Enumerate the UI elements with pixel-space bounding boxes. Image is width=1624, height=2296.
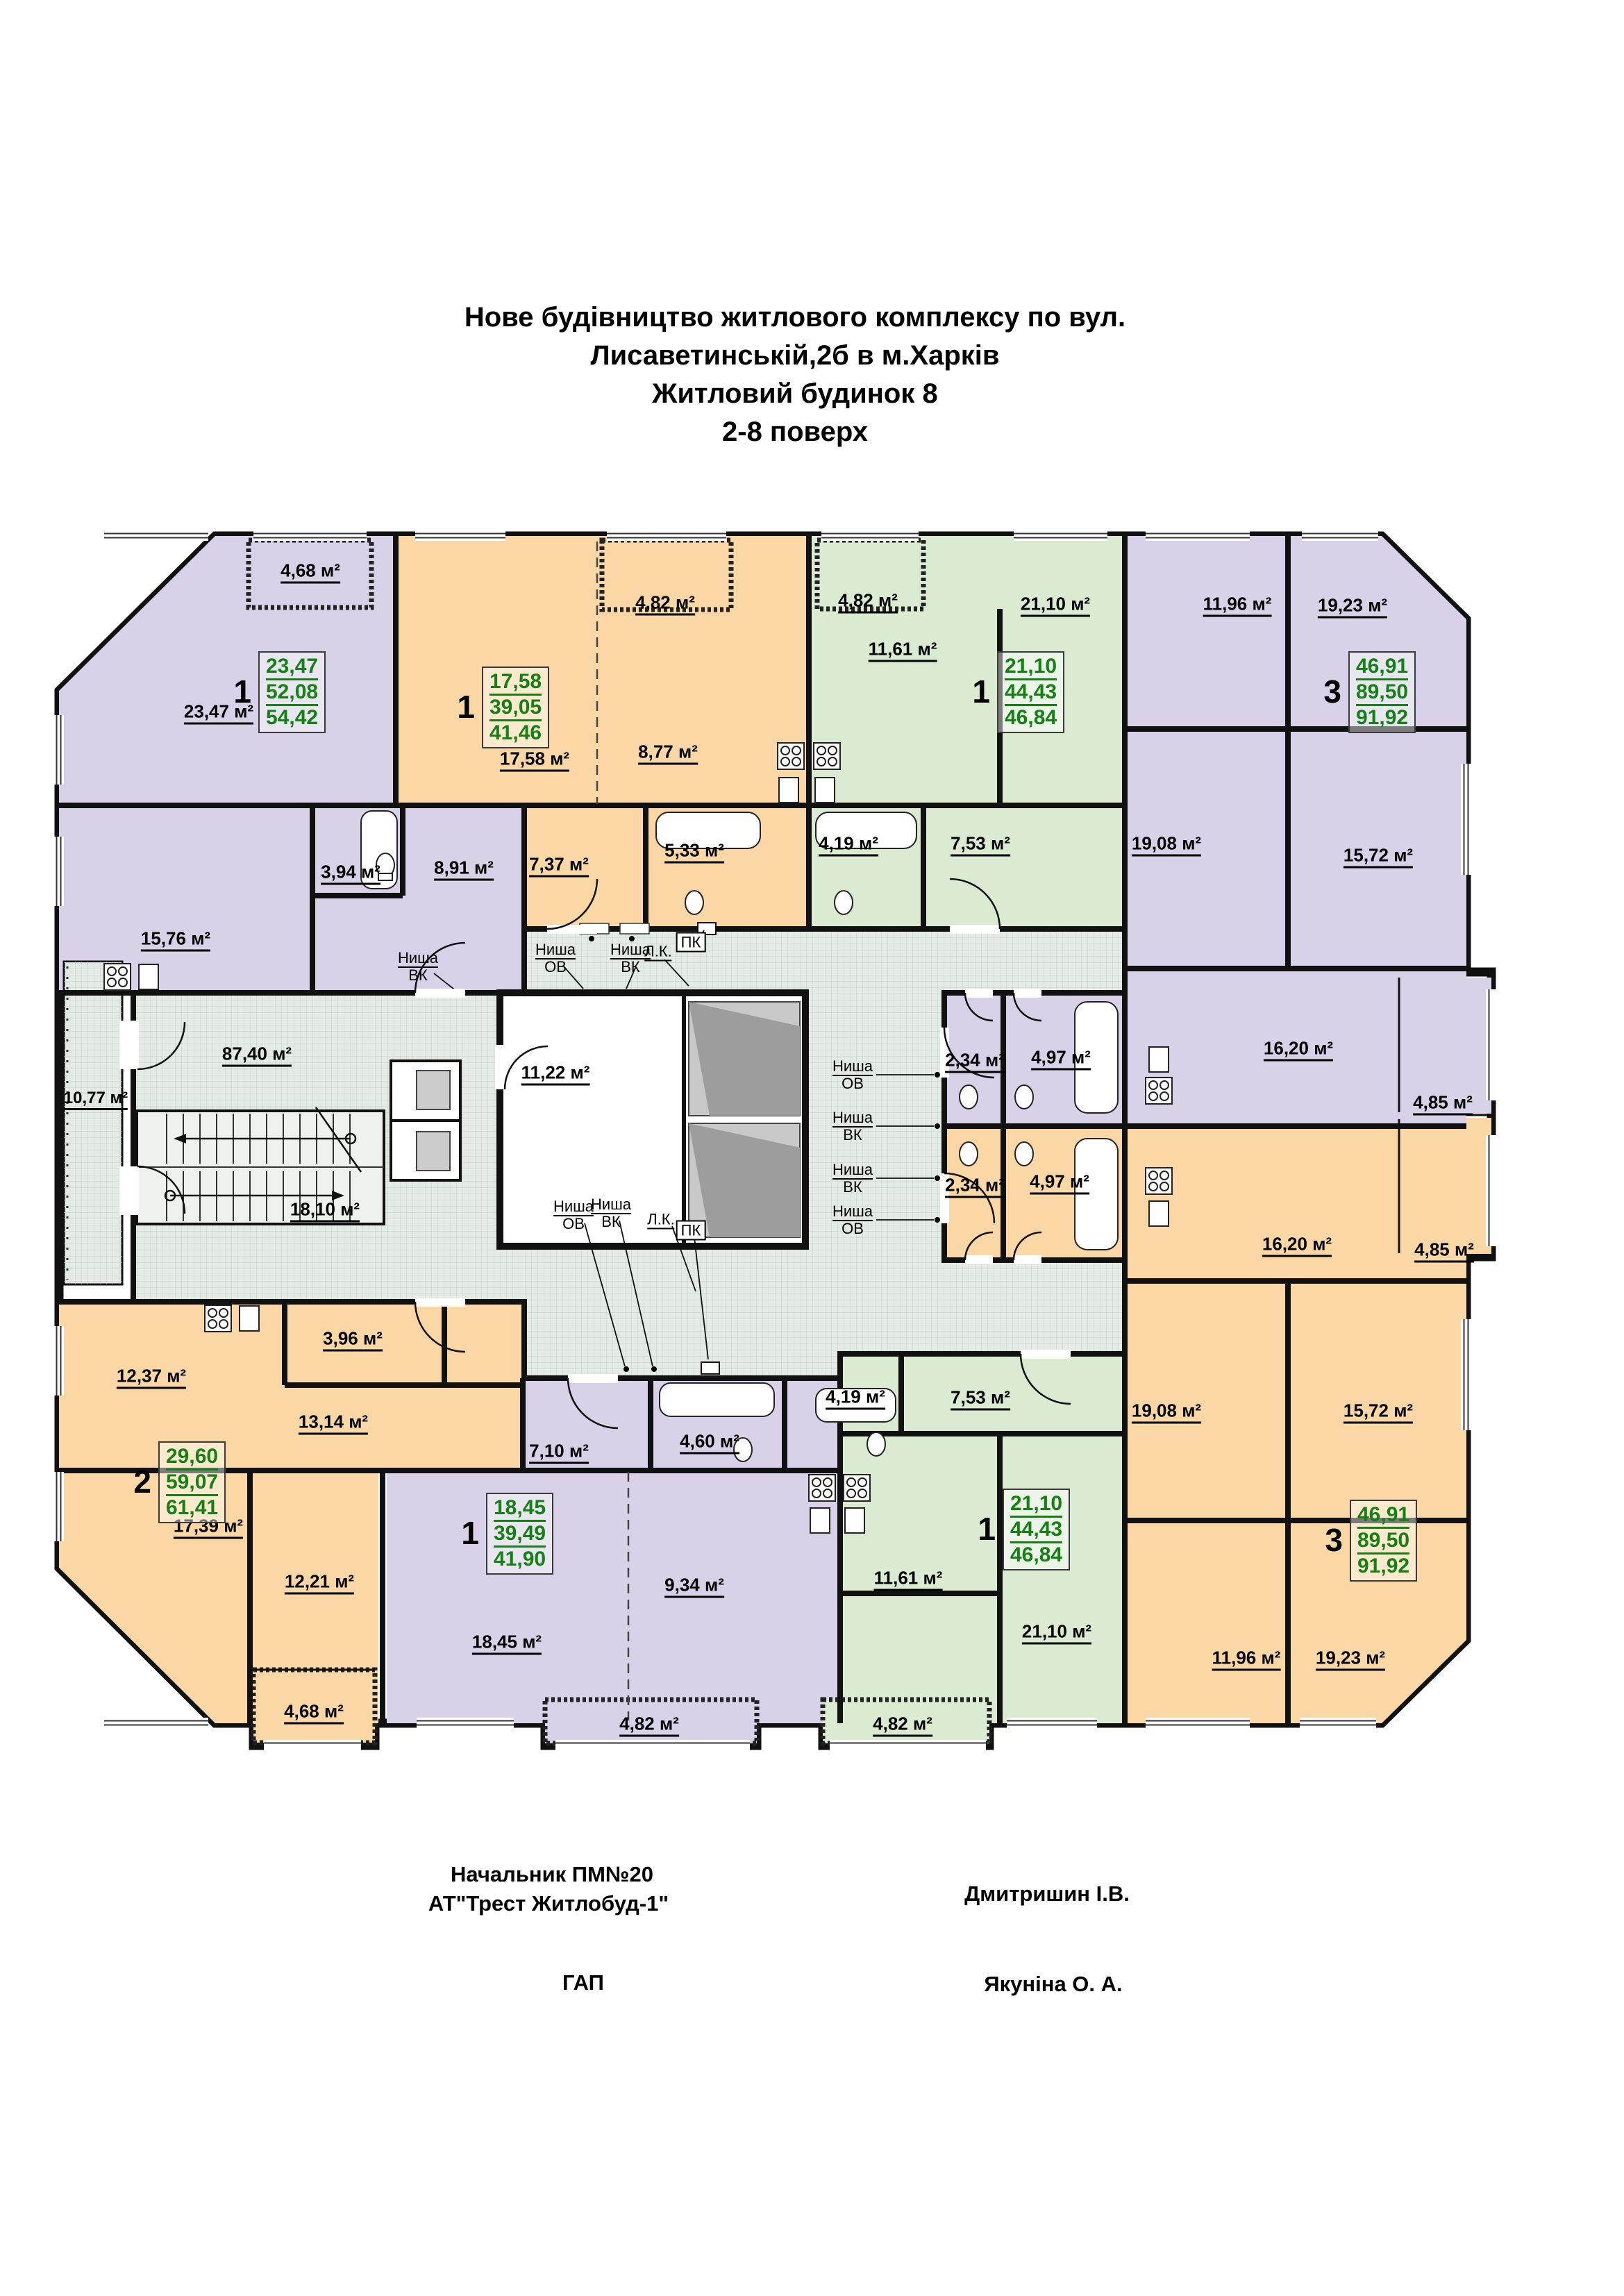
loggia-area-label: 10,77 м² — [64, 1089, 128, 1108]
apartment-rooms-count: 1 — [233, 673, 251, 710]
room-area-label: 11,61 м² — [874, 1568, 943, 1589]
corridor-area-label: 87,40 м² — [222, 1044, 292, 1065]
room-area-label: 16,20 м² — [1264, 1038, 1333, 1059]
title-line-4: 2-8 поверх — [464, 413, 1125, 451]
room-area-label: 9,34 м² — [664, 1575, 724, 1596]
room-area-label: 7,10 м² — [529, 1441, 589, 1462]
title-line-1: Нове будівництво житлового комплексу по … — [464, 299, 1125, 337]
room-area-label: 7,53 м² — [951, 1387, 1010, 1409]
room-area-label: 15,72 м² — [1343, 845, 1413, 866]
room-area-label: 4,82 м² — [619, 1713, 679, 1735]
apartment-stats-box: 17,5839,0541,46 — [482, 667, 549, 748]
room-area-label: 4,82 м² — [873, 1713, 932, 1735]
apartment-rooms-count: 2 — [133, 1463, 151, 1500]
room-area-label: 4,85 м² — [1414, 1239, 1474, 1261]
apartment-stats-box: 46,9189,5091,92 — [1350, 1500, 1417, 1582]
floorplan-sheet: { "title": { "line1": "Нове будівництво … — [0, 0, 1624, 2296]
title-line-3: Житловий будинок 8 — [464, 375, 1125, 413]
room-area-label: 13,14 м² — [299, 1411, 368, 1433]
room-area-label: 4,68 м² — [284, 1701, 344, 1723]
room-area-label: 4,82 м² — [635, 592, 695, 614]
niche-label: НишаОВ — [553, 1198, 594, 1232]
room-area-label: 19,23 м² — [1316, 1648, 1385, 1669]
fire-cabinet-label: ПК — [676, 934, 706, 951]
room-area-label: 12,37 м² — [117, 1366, 186, 1387]
apartment-rooms-count: 1 — [972, 673, 990, 710]
room-area-label: 8,91 м² — [434, 857, 494, 879]
room-area-label: 2,34 м² — [945, 1050, 1005, 1071]
apartment-rooms-count: 3 — [1325, 1521, 1343, 1559]
room-area-label: 21,10 м² — [1022, 1621, 1091, 1643]
niche-label: НишаВК — [591, 1196, 631, 1230]
title-line-2: Лисаветинській,2б в м.Харків — [464, 337, 1125, 375]
apartment-stats-box: 21,1044,4346,84 — [1003, 1489, 1070, 1570]
room-area-label: 15,76 м² — [141, 928, 210, 950]
room-area-label: 17,58 м² — [500, 748, 569, 770]
room-area-label: 2,34 м² — [945, 1175, 1005, 1196]
room-area-label: 7,37 м² — [529, 854, 589, 875]
sheet-title: Нове будівництво житлового комплексу по … — [464, 299, 1125, 451]
apartment-stats-box: 29,6059,0761,41 — [158, 1441, 226, 1523]
apartment-rooms-count: 1 — [978, 1510, 996, 1548]
niche-label: НишаОВ — [535, 941, 576, 975]
room-area-label: 4,68 м² — [281, 560, 340, 582]
room-area-label: 4,19 м² — [819, 833, 878, 855]
room-area-label: 3,94 м² — [321, 862, 380, 883]
stair-core-label: Л.К. — [647, 1211, 674, 1228]
room-area-label: 7,53 м² — [951, 833, 1010, 855]
room-area-label: 3,96 м² — [323, 1328, 383, 1350]
room-area-label: 8,77 м² — [638, 741, 698, 763]
elevator-core — [495, 993, 805, 1246]
stair-core-label: Л.К. — [644, 943, 671, 960]
signature-name-1: Дмитришин І.В. — [964, 1882, 1130, 1907]
room-area-label: 16,20 м² — [1262, 1234, 1332, 1255]
room-area-label: 4,97 м² — [1030, 1171, 1089, 1193]
stairs-area-label: 18,10 м² — [290, 1199, 360, 1221]
room-area-label: 4,85 м² — [1413, 1092, 1473, 1114]
niche-label: НишаВК — [398, 949, 438, 984]
small-elevators — [391, 1061, 460, 1180]
room-area-label: 18,45 м² — [472, 1632, 542, 1653]
fire-cabinet-label: ПК — [676, 1222, 706, 1239]
room-area-label: 11,61 м² — [869, 639, 937, 660]
apartment-rooms-count: 1 — [461, 1514, 479, 1552]
apartment-stats-box: 18,4539,4941,90 — [486, 1493, 553, 1575]
signature-name-2: Якуніна О. А. — [984, 1972, 1122, 1997]
room-area-label: 21,10 м² — [1021, 594, 1090, 615]
niche-label: НишаВК — [832, 1161, 873, 1196]
room-area-label: 12,21 м² — [285, 1571, 354, 1593]
niche-label: НишаОВ — [832, 1057, 873, 1092]
room-area-label: 19,23 м² — [1318, 595, 1387, 617]
signature-role-gap: ГАП — [562, 1970, 604, 1995]
room-area-label: 11,96 м² — [1203, 594, 1272, 615]
apartment-stats-box: 21,1044,4346,84 — [997, 651, 1064, 733]
niche-label: НишаВК — [832, 1109, 873, 1143]
room-area-label: 15,72 м² — [1343, 1400, 1413, 1422]
apartment-rooms-count: 1 — [457, 688, 475, 726]
apartment-stats-box: 23,4752,0854,42 — [258, 651, 326, 733]
signature-role-line2: АТ"Трест Житлобуд-1" — [428, 1891, 669, 1916]
niche-label: НишаОВ — [832, 1203, 873, 1237]
room-area-label: 4,19 м² — [826, 1386, 885, 1408]
lobby-area-label: 11,22 м² — [521, 1062, 590, 1084]
signature-role-line1: Начальник ПМ№20 — [451, 1862, 653, 1887]
room-area-label: 19,08 м² — [1132, 1400, 1201, 1422]
room-area-label: 5,33 м² — [664, 840, 724, 862]
room-area-label: 19,08 м² — [1132, 833, 1201, 855]
apartment-stats-box: 46,9189,5091,92 — [1348, 651, 1416, 733]
apartment-rooms-count: 3 — [1323, 673, 1341, 710]
room-area-label: 4,82 м² — [838, 590, 898, 612]
room-area-label: 4,97 м² — [1031, 1047, 1091, 1069]
room-area-label: 4,60 м² — [680, 1431, 739, 1452]
room-area-label: 11,96 м² — [1212, 1648, 1281, 1669]
